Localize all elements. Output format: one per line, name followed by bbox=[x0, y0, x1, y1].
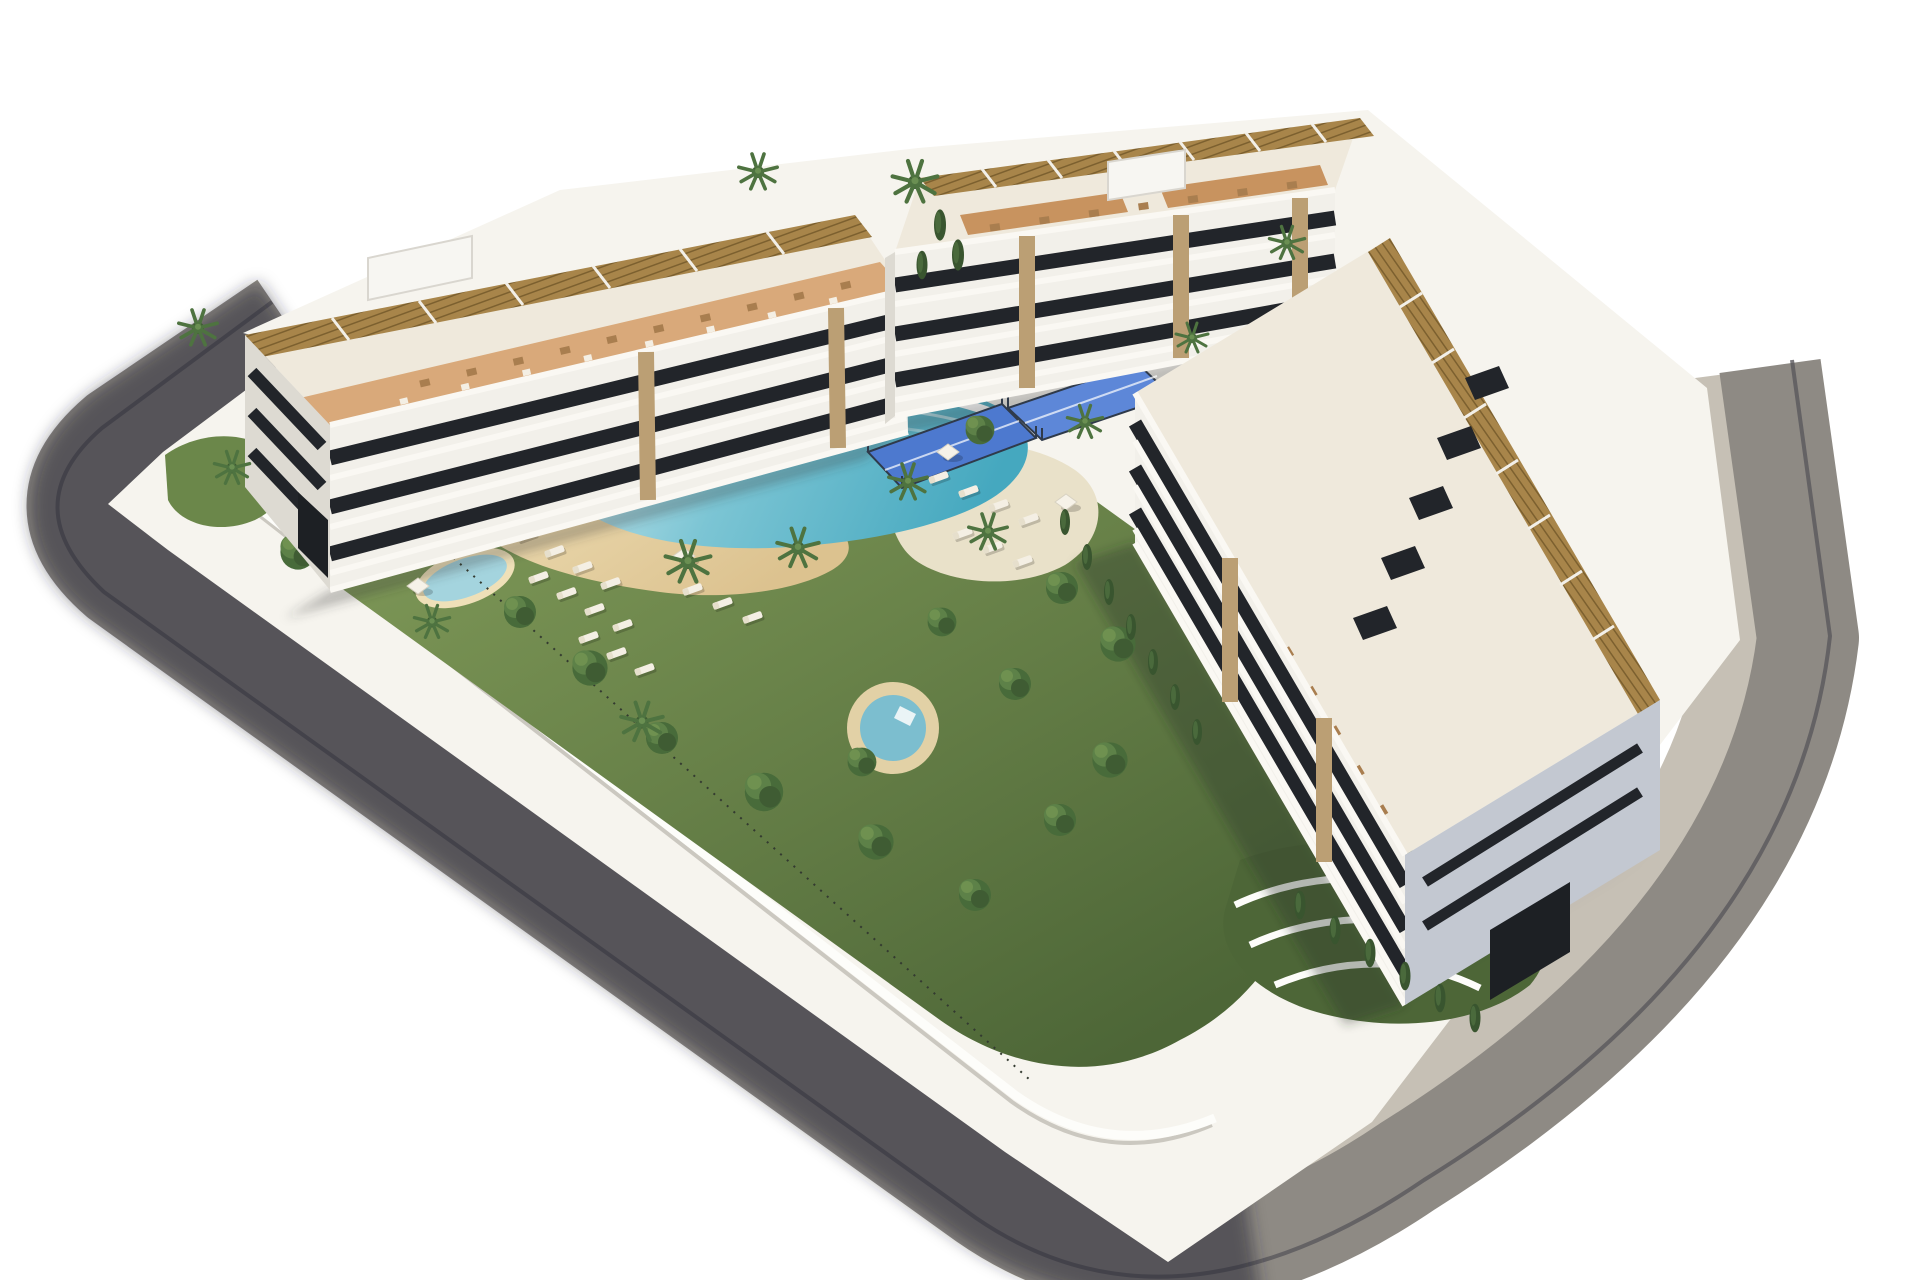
tree bbox=[1046, 572, 1078, 604]
tree bbox=[928, 608, 957, 637]
cypress bbox=[1082, 544, 1092, 570]
tree bbox=[1044, 804, 1076, 836]
cypress bbox=[1126, 614, 1136, 640]
cypress bbox=[1295, 891, 1306, 920]
cypress bbox=[1470, 1004, 1481, 1033]
cypress bbox=[1170, 684, 1180, 710]
tree bbox=[1092, 742, 1127, 777]
tree bbox=[745, 773, 783, 811]
cypress bbox=[1435, 984, 1446, 1013]
cypress bbox=[1365, 939, 1376, 968]
tree bbox=[966, 416, 995, 445]
cypress bbox=[934, 209, 946, 240]
cypress bbox=[1400, 962, 1411, 991]
cypress bbox=[1192, 719, 1202, 745]
scene-svg bbox=[0, 0, 1920, 1280]
tree bbox=[848, 748, 877, 777]
cypress bbox=[917, 251, 928, 280]
cypress bbox=[952, 239, 964, 270]
tree bbox=[959, 879, 991, 911]
cypress bbox=[1104, 579, 1114, 605]
cypress bbox=[1330, 916, 1341, 945]
tree bbox=[999, 668, 1031, 700]
cypress bbox=[1148, 649, 1158, 675]
render-canvas bbox=[0, 0, 1920, 1280]
tree bbox=[572, 650, 607, 685]
cypress bbox=[1060, 509, 1070, 535]
tree bbox=[504, 596, 536, 628]
back-end-edge bbox=[885, 252, 895, 424]
tree bbox=[858, 824, 893, 859]
